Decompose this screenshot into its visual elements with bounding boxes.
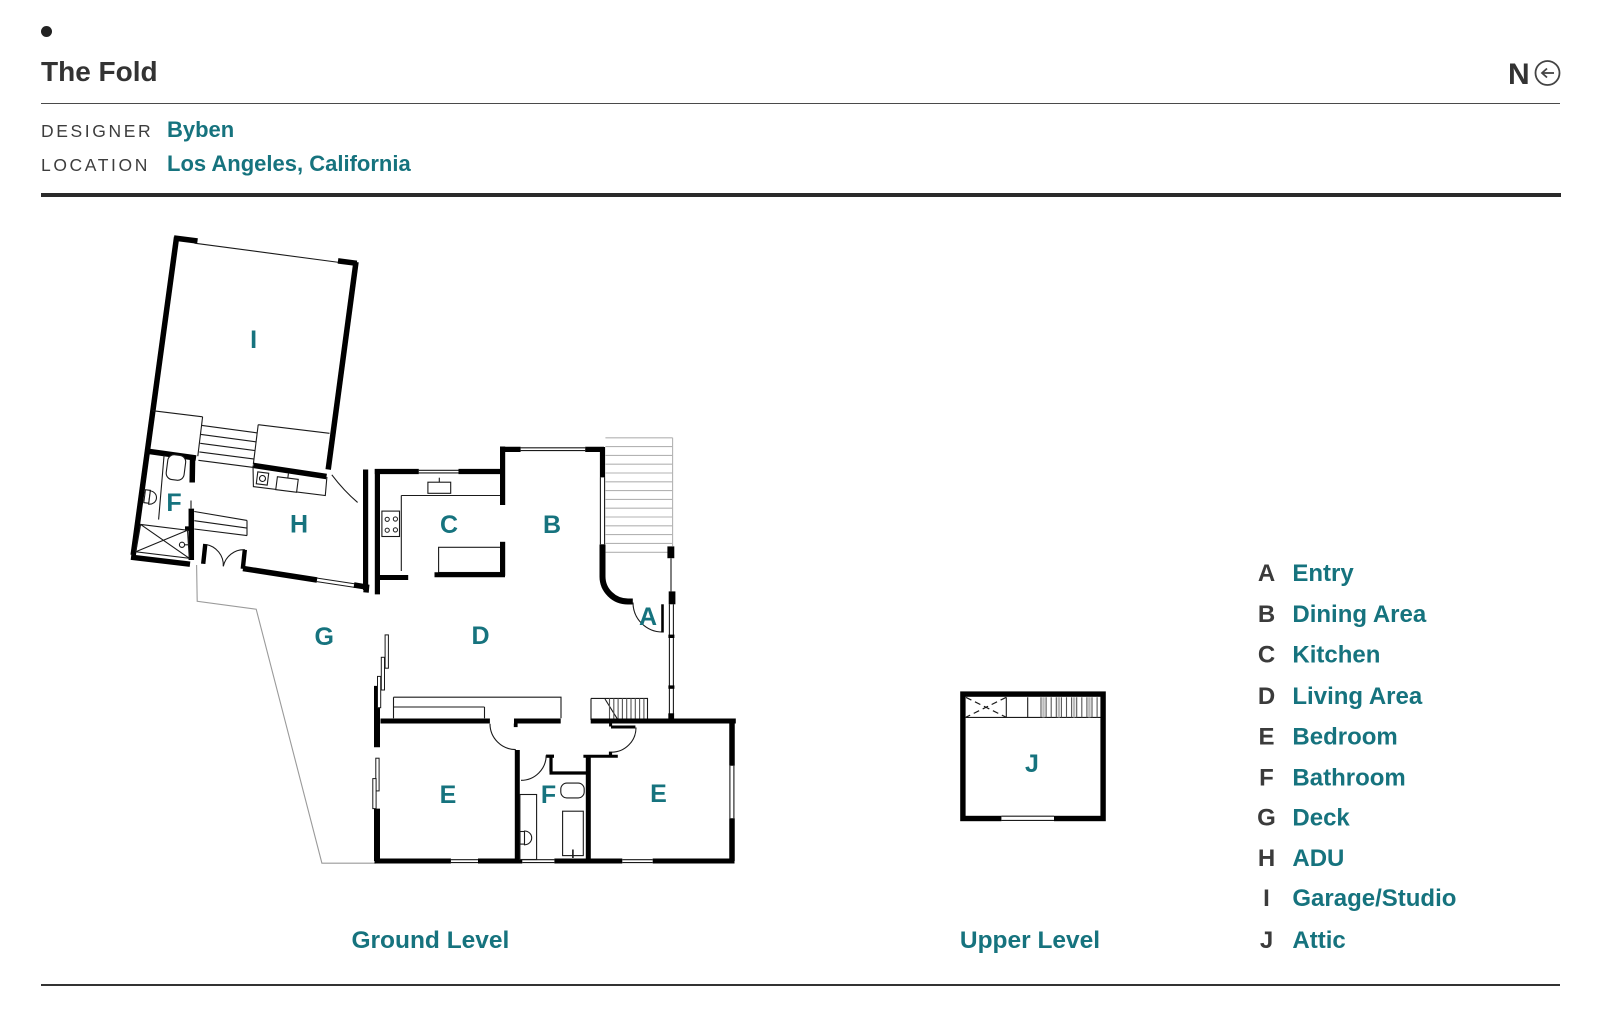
svg-text:C: C	[1258, 642, 1275, 669]
svg-text:Kitchen: Kitchen	[1292, 642, 1380, 669]
svg-text:A: A	[1258, 560, 1275, 587]
svg-text:Garage/Studio: Garage/Studio	[1292, 885, 1456, 912]
svg-text:Bathroom: Bathroom	[1292, 765, 1405, 792]
svg-text:H: H	[290, 511, 308, 539]
svg-text:Upper Level: Upper Level	[960, 927, 1100, 954]
svg-text:J: J	[1260, 927, 1273, 954]
svg-text:G: G	[1257, 805, 1276, 832]
svg-text:I: I	[250, 326, 257, 354]
svg-text:B: B	[1258, 601, 1275, 628]
svg-text:F: F	[1259, 765, 1274, 792]
svg-text:C: C	[440, 511, 458, 539]
svg-text:A: A	[639, 603, 657, 631]
svg-text:ADU: ADU	[1292, 845, 1344, 872]
svg-text:Entry: Entry	[1292, 560, 1354, 587]
svg-text:G: G	[314, 623, 333, 651]
svg-text:I: I	[1263, 885, 1270, 912]
svg-text:J: J	[1025, 750, 1039, 778]
svg-text:D: D	[471, 622, 489, 650]
svg-text:E: E	[440, 781, 457, 809]
svg-text:B: B	[543, 511, 561, 539]
svg-text:F: F	[541, 781, 556, 809]
svg-text:Bedroom: Bedroom	[1292, 724, 1397, 751]
svg-text:E: E	[650, 780, 667, 808]
svg-text:Ground Level: Ground Level	[351, 927, 509, 954]
svg-text:H: H	[1258, 845, 1275, 872]
svg-text:Dining Area: Dining Area	[1292, 601, 1426, 628]
svg-text:D: D	[1258, 683, 1275, 710]
svg-text:F: F	[166, 489, 181, 517]
svg-text:Deck: Deck	[1292, 805, 1350, 832]
svg-text:Attic: Attic	[1292, 927, 1345, 954]
svg-text:E: E	[1258, 724, 1274, 751]
svg-text:Living Area: Living Area	[1292, 683, 1422, 710]
